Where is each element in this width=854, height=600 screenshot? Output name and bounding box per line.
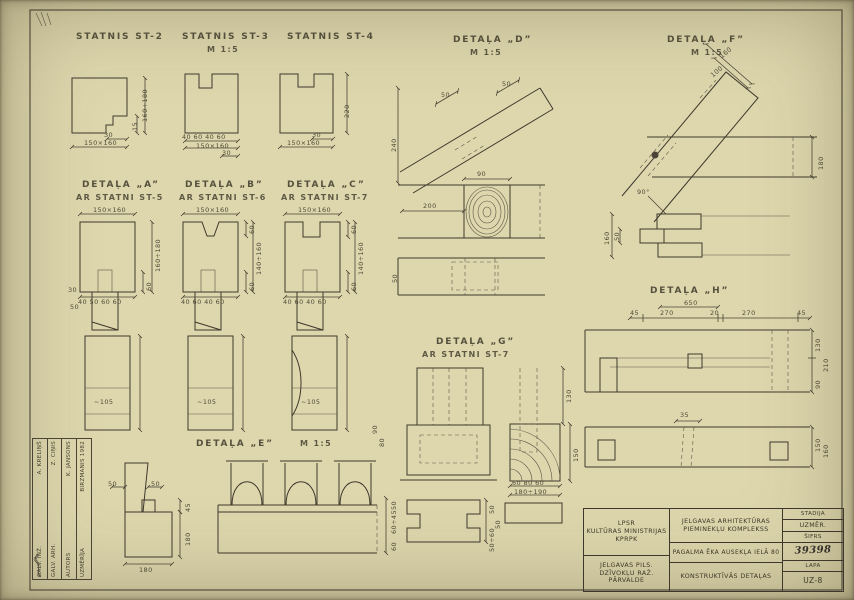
dim-label: ~105 bbox=[94, 398, 113, 406]
signature-role: AUTORS bbox=[66, 533, 72, 579]
section-subtitle: AR STATNI ST-5 bbox=[76, 193, 164, 202]
section-subtitle: AR STATNI ST-6 bbox=[179, 193, 267, 202]
signature-name: A. KRELIŅŠ bbox=[37, 439, 43, 474]
dim-label: 50 bbox=[488, 505, 496, 514]
dim-label: 220 bbox=[343, 104, 351, 118]
dim-label: 150×160 bbox=[298, 206, 331, 214]
signature-row: AUTORS K. JANSONS bbox=[62, 439, 77, 579]
dim-label: 50 bbox=[391, 274, 399, 283]
dim-label: 150 bbox=[572, 448, 580, 462]
dim-label: 50 bbox=[70, 303, 79, 311]
dim-label: 240 bbox=[390, 138, 398, 152]
signature-row: GALV. ARH. Z. CIŅIS bbox=[48, 439, 63, 579]
dim-label: 50 bbox=[151, 480, 160, 488]
dim-label: 30 bbox=[222, 149, 231, 157]
dim-label: 150 bbox=[814, 438, 822, 452]
dept-line: JELGAVAS PILS. bbox=[584, 562, 669, 570]
dim-label: 160÷180 bbox=[141, 89, 149, 122]
project-line: PIEMINEKĻU KOMPLEKSS bbox=[670, 526, 782, 534]
dim-label: 150×160 bbox=[84, 139, 117, 147]
detail-c bbox=[285, 214, 355, 330]
section-title: DETAĻA „F” bbox=[667, 35, 745, 45]
section-title: STATNIS ST-4 bbox=[287, 32, 375, 42]
section-title: DETAĻA „D” bbox=[453, 35, 532, 45]
detail-e bbox=[112, 461, 386, 564]
dim-label: 50 bbox=[502, 80, 511, 88]
dim-label: 130 bbox=[565, 389, 573, 403]
dim-label: 140÷160 bbox=[255, 242, 263, 275]
dim-label: 40 60 40 60 bbox=[182, 133, 226, 141]
dim-label: 180 bbox=[817, 156, 825, 170]
signature-row: UZMĒRĪJA BIRZMANIS 1982 bbox=[77, 439, 91, 579]
dim-label: 150×160 bbox=[196, 206, 229, 214]
dim-label: 270 bbox=[660, 309, 674, 317]
dim-label: 210 bbox=[822, 358, 830, 372]
dim-label: 50 bbox=[390, 501, 398, 510]
dim-label: 40 60 40 60 bbox=[283, 298, 327, 306]
detail-d bbox=[398, 80, 553, 295]
org-line: LPSR bbox=[584, 520, 669, 528]
detail-b bbox=[183, 214, 253, 330]
dim-label: 30 bbox=[68, 286, 77, 294]
dim-label: 20 bbox=[710, 309, 719, 317]
section-title: DETAĻA „A” bbox=[82, 180, 160, 190]
dim-label: 30 bbox=[104, 131, 113, 139]
section-subtitle: AR STATNI ST-7 bbox=[422, 350, 510, 359]
org-line: KPRPK bbox=[584, 536, 669, 544]
dim-label: 80 bbox=[378, 438, 386, 447]
drawing-number-cell: 39398 bbox=[783, 543, 843, 561]
dim-label: 90 bbox=[814, 380, 822, 389]
drawing-number: 39398 bbox=[783, 544, 843, 559]
dim-label: 35 bbox=[680, 411, 689, 419]
dim-label: ~105 bbox=[301, 398, 320, 406]
dept-line: DZĪVOKĻU RAŽ. PĀRVALDE bbox=[584, 570, 669, 586]
frame-border bbox=[30, 10, 842, 590]
signature-role: UZMĒRĪJA bbox=[80, 533, 86, 579]
scale-label: M 1:5 bbox=[470, 48, 502, 57]
section-title: DETAĻA „B” bbox=[185, 180, 264, 190]
content-cell: KONSTRUKTĪVĀS DETAĻAS bbox=[670, 563, 782, 591]
dim-label: 130 bbox=[814, 338, 822, 352]
section-title: DETAĻA „E” bbox=[196, 439, 274, 449]
scale-label: M 1:5 bbox=[300, 439, 332, 448]
signature-mark bbox=[33, 553, 43, 579]
sheet-content: KONSTRUKTĪVĀS DETAĻAS bbox=[670, 573, 782, 581]
uzmer-cell: UZMĒR. bbox=[783, 520, 843, 532]
dim-label: 160÷180 bbox=[154, 239, 162, 272]
detail-a bbox=[80, 214, 152, 330]
project-cell: JELGAVAS ARHITEKTŪRAS PIEMINEKĻU KOMPLEK… bbox=[670, 509, 782, 543]
dim-label: 60 bbox=[248, 282, 256, 291]
angle-label: 90° bbox=[637, 188, 650, 196]
dim-label: 40 60 40 60 bbox=[181, 298, 225, 306]
dim-label: 50÷60 bbox=[488, 528, 496, 552]
project-line: JELGAVAS ARHITEKTŪRAS bbox=[670, 518, 782, 526]
dim-label: 30 bbox=[312, 131, 321, 139]
dim-label: ~105 bbox=[197, 398, 216, 406]
dim-label: 45 bbox=[630, 309, 639, 317]
dim-label: 45 bbox=[184, 503, 192, 512]
dim-label: 60 80 60 bbox=[512, 479, 544, 487]
sheet-code-cell: UZ-8 bbox=[783, 572, 843, 590]
dim-label: 45 bbox=[797, 309, 806, 317]
dim-label: 160 bbox=[603, 231, 611, 245]
dim-label: 50 bbox=[441, 91, 450, 99]
dim-label: 150×160 bbox=[287, 139, 320, 147]
section-subtitle: AR STATNI ST-7 bbox=[281, 193, 369, 202]
object-cell: PAGALMA ĒKA AUSEKĻA IELĀ 80 bbox=[670, 543, 782, 563]
dim-label: 15 bbox=[131, 122, 139, 131]
dim-label: 60 bbox=[145, 282, 153, 291]
dim-label: 50 bbox=[613, 232, 621, 241]
dim-label: 650 bbox=[684, 299, 698, 307]
dim-label: 90 bbox=[371, 425, 379, 434]
section-title: DETAĻA „G” bbox=[436, 337, 515, 347]
drawing-sheet: STATNIS ST-2 STATNIS ST-3 M 1:5 STATNIS … bbox=[0, 0, 854, 600]
section-title: DETAĻA „H” bbox=[650, 286, 729, 296]
stadija-cell: STADIJA bbox=[783, 509, 843, 520]
sifrs-cell: ŠIFRS bbox=[783, 532, 843, 543]
signature-role: GALV. ARH. bbox=[51, 533, 57, 579]
dim-label: 60 bbox=[350, 225, 358, 234]
dim-label: 150×160 bbox=[93, 206, 126, 214]
dept-cell: JELGAVAS PILS. DZĪVOKĻU RAŽ. PĀRVALDE bbox=[584, 556, 669, 591]
dim-label: 140÷160 bbox=[357, 242, 365, 275]
dim-label: 180 bbox=[139, 566, 153, 574]
dim-label: 60 bbox=[350, 282, 358, 291]
detail-g bbox=[400, 368, 570, 542]
dim-label: 50 bbox=[108, 480, 117, 488]
dim-label: 60 bbox=[248, 225, 256, 234]
detail-h bbox=[585, 307, 816, 467]
signature-name: BIRZMANIS 1982 bbox=[80, 439, 86, 492]
dim-label: 40 50 60 60 bbox=[78, 298, 122, 306]
dim-label: 180÷190 bbox=[514, 488, 547, 496]
lapa-cell: LAPA bbox=[783, 561, 843, 572]
dim-label: 180 bbox=[184, 532, 192, 546]
signature-name: Z. CIŅIS bbox=[51, 439, 57, 465]
org-cell: LPSR KULTŪRAS MINISTRIJAS KPRPK bbox=[584, 509, 669, 556]
dim-label: 270 bbox=[742, 309, 756, 317]
posts-elevation bbox=[85, 336, 347, 430]
dim-label: 160 bbox=[822, 444, 830, 458]
dim-label: 90 bbox=[477, 170, 486, 178]
section-title: DETAĻA „C” bbox=[287, 180, 366, 190]
title-block: LPSR KULTŪRAS MINISTRIJAS KPRPK JELGAVAS… bbox=[583, 508, 844, 592]
signature-block: GALV. INŽ. A. KRELIŅŠ GALV. ARH. Z. CIŅI… bbox=[32, 438, 92, 580]
signature-name: K. JANSONS bbox=[66, 439, 72, 476]
scale-label: M 1:5 bbox=[207, 45, 239, 54]
section-title: STATNIS ST-2 bbox=[76, 32, 164, 42]
pencil-marks bbox=[36, 12, 51, 26]
dim-label: 60÷45 bbox=[390, 510, 398, 534]
dim-label: 200 bbox=[423, 202, 437, 210]
section-title: STATNIS ST-3 bbox=[182, 32, 270, 42]
object-name: PAGALMA ĒKA AUSEKĻA IELĀ 80 bbox=[670, 549, 782, 557]
org-line: KULTŪRAS MINISTRIJAS bbox=[584, 528, 669, 536]
dim-label: 60 bbox=[390, 542, 398, 551]
